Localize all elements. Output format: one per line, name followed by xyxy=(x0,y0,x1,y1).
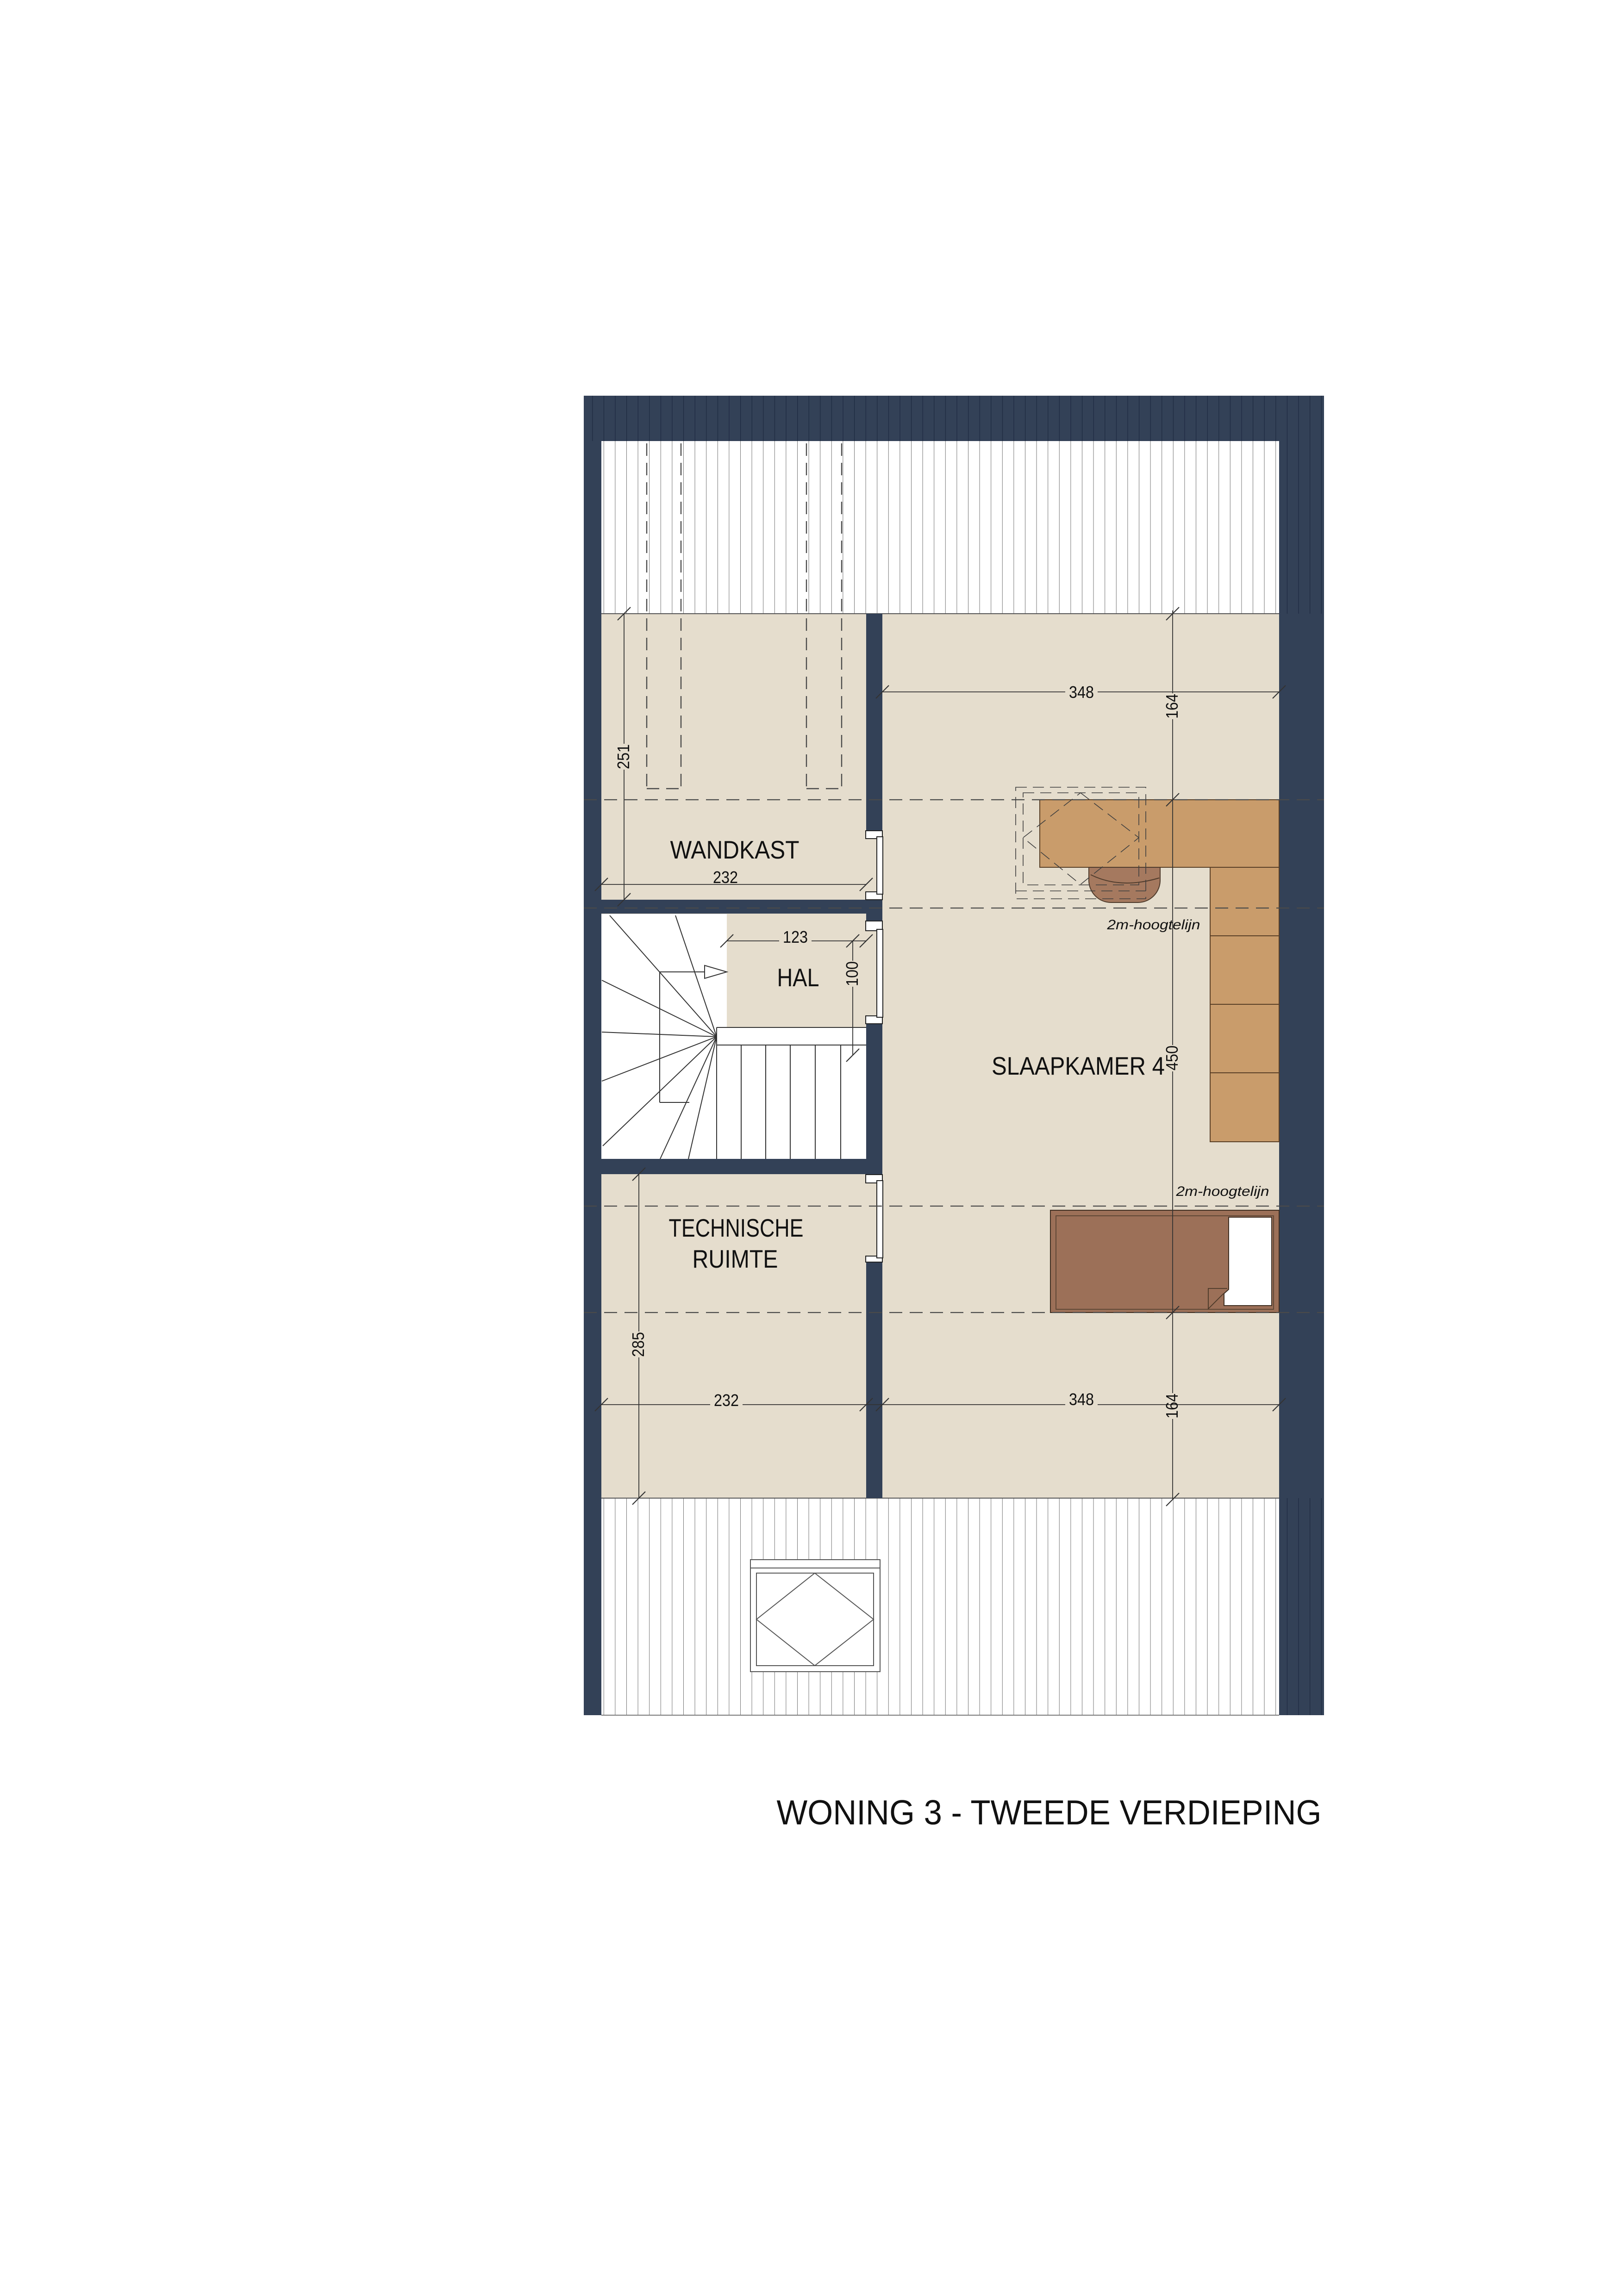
svg-text:2m-hoogtelijn: 2m-hoogtelijn xyxy=(1175,1184,1269,1199)
svg-text:348: 348 xyxy=(1069,683,1094,702)
svg-text:HAL: HAL xyxy=(777,963,819,992)
svg-text:2m-hoogtelijn: 2m-hoogtelijn xyxy=(1106,917,1200,933)
svg-text:100: 100 xyxy=(843,961,862,986)
svg-text:285: 285 xyxy=(629,1332,648,1357)
svg-text:164: 164 xyxy=(1162,1394,1181,1419)
svg-text:251: 251 xyxy=(614,744,633,769)
svg-text:123: 123 xyxy=(783,927,808,946)
svg-text:RUIMTE: RUIMTE xyxy=(693,1244,778,1273)
svg-text:SLAAPKAMER 4: SLAAPKAMER 4 xyxy=(992,1052,1165,1080)
svg-text:450: 450 xyxy=(1162,1045,1181,1070)
svg-text:232: 232 xyxy=(714,1391,739,1410)
svg-text:TECHNISCHE: TECHNISCHE xyxy=(669,1213,804,1242)
svg-text:WANDKAST: WANDKAST xyxy=(670,835,800,864)
svg-text:164: 164 xyxy=(1162,694,1181,719)
svg-text:232: 232 xyxy=(713,868,738,887)
svg-text:WONING 3 - TWEEDE VERDIEPING: WONING 3 - TWEEDE VERDIEPING xyxy=(777,1793,1322,1832)
svg-text:348: 348 xyxy=(1069,1390,1094,1409)
